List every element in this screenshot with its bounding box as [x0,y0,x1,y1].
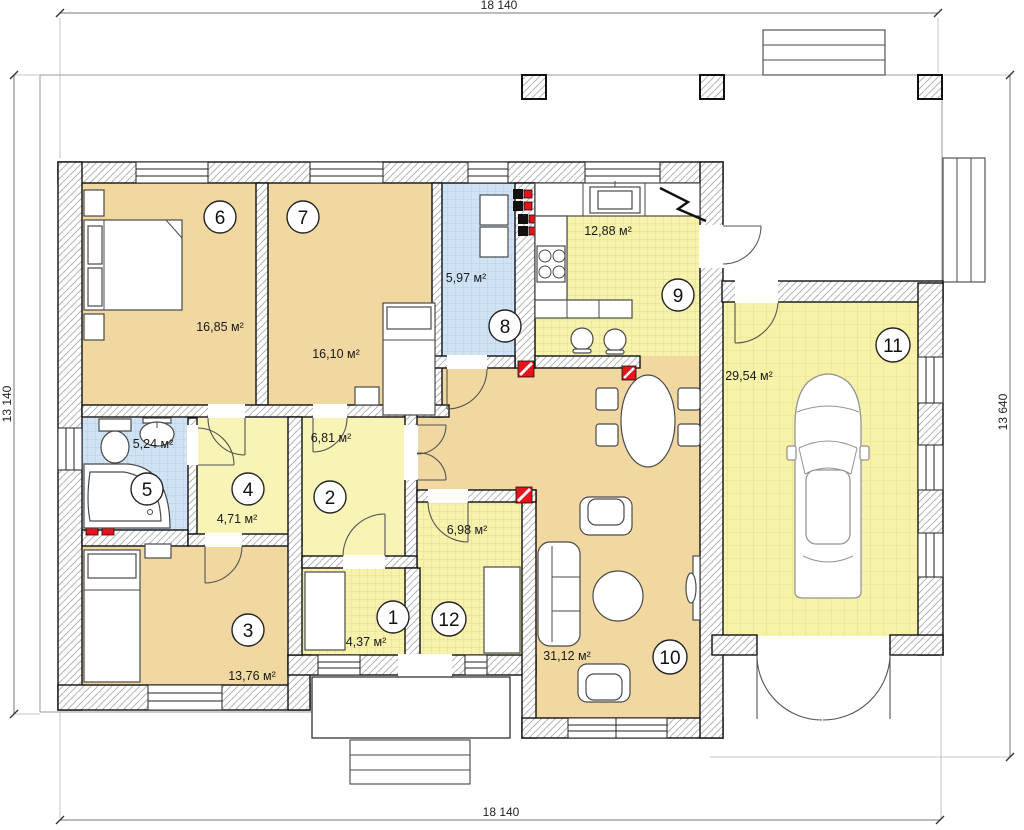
armchair-icon [578,664,630,702]
entrance-porch [312,677,510,784]
window [918,357,943,403]
terrace-column [522,75,546,99]
svg-text:13,76 м²: 13,76 м² [228,669,276,683]
svg-text:12,88 м²: 12,88 м² [584,224,632,238]
window [585,162,660,183]
wardrobe-icon [305,572,345,650]
dim-left: 13 140 [0,385,14,422]
vent-marker [518,361,534,377]
floor-plan-drawing: 14,37 м² 26,81 м² 313,76 м² 44,71 м² 55,… [0,0,1024,825]
armchair-icon [580,497,632,535]
window [918,445,943,490]
coffee-table-icon [593,571,643,621]
toilet-icon [99,419,131,463]
steps-right [943,158,985,282]
steps-top [763,30,885,75]
dim-right: 13 640 [996,393,1010,430]
svg-text:12: 12 [438,610,459,631]
window [568,718,667,738]
svg-text:4,71 м²: 4,71 м² [217,512,258,526]
window [58,428,82,470]
svg-text:6: 6 [215,208,226,229]
car-icon [787,374,869,598]
window [310,162,383,183]
svg-text:4: 4 [243,480,254,501]
svg-text:6,81 м²: 6,81 м² [311,431,352,445]
floor-plan-page: 14,37 м² 26,81 м² 313,76 м² 44,71 м² 55,… [0,0,1024,825]
window [468,162,508,183]
dim-bottom: 18 140 [483,805,520,819]
svg-text:8: 8 [500,317,511,338]
window [136,162,208,183]
svg-text:29,54 м²: 29,54 м² [725,369,773,383]
window [465,655,487,675]
vent-marker [516,487,532,503]
dim-top: 18 140 [481,0,518,12]
svg-text:7: 7 [298,208,309,229]
svg-text:11: 11 [883,336,903,357]
svg-text:3: 3 [243,621,254,642]
stove-icon [537,246,565,282]
svg-text:6,98 м²: 6,98 м² [447,523,488,537]
terrace-column [700,75,724,99]
svg-text:10: 10 [659,648,680,669]
window [318,655,360,675]
svg-text:4,37 м²: 4,37 м² [346,635,387,649]
garage-door [757,655,890,720]
svg-text:9: 9 [673,286,684,307]
vent-marker [622,366,636,380]
svg-text:16,10 м²: 16,10 м² [312,347,360,361]
svg-text:2: 2 [325,488,336,509]
svg-text:5,24 м²: 5,24 м² [133,437,174,451]
sofa-icon [538,542,580,646]
svg-text:5: 5 [142,480,153,501]
svg-text:5,97 м²: 5,97 м² [446,271,487,285]
wardrobe-icon [484,567,520,653]
svg-text:16,85 м²: 16,85 м² [196,320,244,334]
svg-text:1: 1 [388,608,399,629]
window [148,685,222,710]
svg-text:31,12 м²: 31,12 м² [543,649,591,663]
terrace-column [918,75,942,99]
window [918,533,943,577]
